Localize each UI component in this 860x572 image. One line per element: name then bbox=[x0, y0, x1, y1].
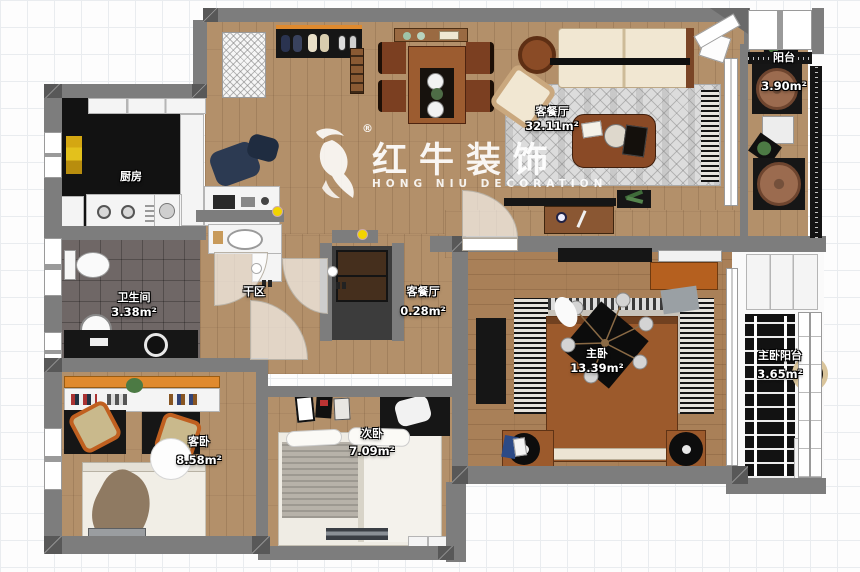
kitchen-yellow-jars bbox=[66, 136, 82, 174]
shoe-item bbox=[308, 34, 317, 52]
plant-leaf bbox=[754, 139, 773, 158]
stove-burner bbox=[97, 205, 111, 219]
room-name: 主卧阳台 bbox=[758, 350, 802, 362]
yellow-marker-dot bbox=[357, 229, 368, 240]
dining-chair bbox=[466, 42, 494, 74]
window-master-balcony-right bbox=[798, 312, 822, 478]
wall-corridor-a bbox=[196, 210, 284, 222]
room-label-passage: 客餐厅 0.28m² bbox=[400, 286, 445, 318]
room-label-master-balcony: 主卧阳台 3.65m² bbox=[757, 350, 802, 381]
room-name: 卫生间 bbox=[118, 292, 151, 304]
wall-guest-bottom bbox=[44, 536, 270, 554]
decor-tray bbox=[439, 31, 459, 40]
wall-corner bbox=[192, 84, 207, 98]
bath-vanity bbox=[64, 330, 198, 360]
nightstand-paper bbox=[513, 437, 527, 456]
room-label-second: 次卧 7.09m² bbox=[349, 428, 394, 458]
drying-rack-rail bbox=[754, 316, 757, 476]
picture-frame bbox=[315, 393, 333, 418]
drying-rack-floor bbox=[745, 314, 795, 478]
wall-balcony-left bbox=[740, 44, 748, 238]
master-ac-unit bbox=[658, 250, 722, 262]
toilet-tank bbox=[64, 250, 76, 280]
room-label-balcony: 阳台 3.90m² bbox=[761, 52, 806, 93]
entry-bench bbox=[350, 48, 364, 94]
room-name: 干区 bbox=[243, 286, 265, 298]
hongniu-bull-logo bbox=[306, 126, 366, 202]
dining-plate bbox=[427, 101, 444, 118]
wall-corner bbox=[452, 466, 468, 484]
master-bed-foot bbox=[550, 448, 674, 460]
desk-mouse bbox=[556, 212, 567, 223]
second-bed-footbar bbox=[326, 528, 388, 540]
wall-master-bottom bbox=[452, 466, 748, 484]
living-plant bbox=[617, 190, 651, 208]
window-balcony-top bbox=[748, 10, 812, 50]
window-master-balcony bbox=[726, 268, 738, 466]
entry-sideboard bbox=[394, 28, 468, 42]
dining-chair bbox=[378, 80, 406, 112]
second-bed-pillow bbox=[286, 429, 343, 448]
dry-area-vanity bbox=[208, 224, 282, 254]
room-name: 客卧 bbox=[188, 436, 210, 448]
room-name: 次卧 bbox=[361, 428, 383, 440]
wall-second-top bbox=[262, 386, 454, 397]
picture-frame bbox=[295, 395, 316, 423]
media-strip bbox=[504, 198, 616, 206]
wall-second-bottom bbox=[258, 546, 454, 560]
room-label-kitchen: 厨房 bbox=[120, 171, 142, 183]
wall-balcony-cap-right bbox=[812, 8, 824, 54]
drying-rack-rail bbox=[784, 316, 787, 476]
wall-corner bbox=[438, 546, 454, 560]
nightstand-lamp bbox=[682, 445, 691, 454]
dimension-strip-balcony-right bbox=[810, 66, 822, 238]
wall-corner bbox=[732, 466, 748, 484]
wall-master-left bbox=[452, 252, 468, 482]
rug-runner bbox=[701, 90, 719, 182]
window-living-balcony bbox=[724, 58, 738, 206]
wall-corner bbox=[44, 358, 62, 372]
wall-kitchen-bottom bbox=[56, 226, 206, 240]
shoe-item bbox=[338, 35, 346, 51]
room-name: 主卧 bbox=[586, 348, 608, 360]
room-label-dry-area: 干区 bbox=[243, 286, 265, 298]
wall-bath-bottom bbox=[56, 358, 268, 372]
floor-plan-screenshot: { "watermark": { "brand": "红牛装饰", "subti… bbox=[0, 0, 860, 572]
room-area: 13.39m² bbox=[570, 362, 623, 375]
master-gray-mat bbox=[661, 286, 700, 315]
room-area: 32.11m² bbox=[525, 120, 578, 133]
room-label-guest: 客卧 8.58m² bbox=[176, 436, 221, 467]
book-spines bbox=[169, 394, 199, 405]
master-wardrobe bbox=[476, 318, 506, 404]
coffee-table-book bbox=[581, 121, 603, 139]
dining-centerpiece-plant bbox=[431, 88, 443, 100]
master-balcony-top-cabinet bbox=[746, 254, 818, 310]
watermark-brand: 红牛装饰 bbox=[372, 132, 560, 183]
round-chair bbox=[518, 36, 556, 74]
shoe-rack bbox=[222, 32, 266, 98]
desk-plant bbox=[126, 378, 143, 393]
room-label-living: 客餐厅 32.11m² bbox=[525, 106, 578, 133]
wall-corridor-b bbox=[332, 230, 378, 243]
master-rug-band bbox=[514, 298, 548, 414]
room-name: 阳台 bbox=[773, 52, 795, 64]
second-bed-blanket bbox=[282, 442, 358, 518]
picture-frame bbox=[333, 398, 350, 421]
wall-corner bbox=[44, 536, 62, 554]
room-area: 3.90m² bbox=[761, 80, 806, 93]
kitchen-sink bbox=[154, 194, 180, 228]
room-area: 7.09m² bbox=[349, 445, 394, 458]
room-area: 3.38m² bbox=[111, 306, 156, 319]
wall-corner bbox=[44, 84, 62, 98]
wall-left-4 bbox=[44, 372, 62, 428]
apartment-plan: 客餐厅 32.11m² 阳台 3.90m² 厨房 卫生间 3.38m² 干区 客… bbox=[0, 0, 860, 572]
wall-left-1 bbox=[44, 96, 62, 136]
room-name: 客餐厅 bbox=[407, 286, 440, 298]
window-left-1 bbox=[44, 132, 62, 178]
picture-accent bbox=[320, 400, 328, 406]
watermark-subtitle: HONG NIU DECORATION bbox=[372, 178, 607, 190]
decor-celadon bbox=[417, 32, 425, 40]
room-area: 3.65m² bbox=[757, 368, 802, 381]
wall-corner bbox=[203, 8, 218, 22]
master-tv-console bbox=[558, 248, 652, 262]
yellow-marker-dot bbox=[272, 206, 283, 217]
soap-tray bbox=[213, 231, 223, 244]
wall-top bbox=[203, 8, 749, 22]
room-label-master: 主卧 13.39m² bbox=[570, 348, 623, 375]
wall-entry-left bbox=[193, 20, 207, 90]
small-appliance bbox=[241, 197, 255, 207]
master-rug-band bbox=[680, 298, 714, 414]
appliance-knob bbox=[261, 197, 269, 205]
shoe-item bbox=[320, 34, 329, 52]
rattan-pouf bbox=[757, 162, 801, 206]
room-name: 客餐厅 bbox=[536, 106, 569, 118]
sofa-back-table bbox=[550, 58, 690, 65]
window-left-2 bbox=[44, 238, 62, 296]
master-orange-cabinet bbox=[650, 262, 718, 290]
kitchen-upper-cabinets bbox=[88, 98, 206, 114]
basin bbox=[227, 229, 263, 250]
wall-left-3 bbox=[44, 296, 62, 332]
dining-chair bbox=[466, 80, 494, 112]
book-spines bbox=[107, 394, 127, 405]
dining-chair bbox=[378, 42, 406, 74]
room-area: 0.28m² bbox=[400, 305, 445, 318]
shoe-item bbox=[293, 35, 302, 52]
door-leaf bbox=[462, 238, 518, 251]
room-name: 厨房 bbox=[120, 171, 142, 183]
room-label-bathroom: 卫生间 3.38m² bbox=[111, 292, 156, 319]
plant-leaf bbox=[627, 196, 643, 204]
toilet-bowl bbox=[76, 252, 110, 278]
shoe-item bbox=[281, 35, 290, 52]
decor-celadon bbox=[403, 32, 411, 40]
wall-kitchen-top bbox=[44, 84, 207, 98]
white-marker-dot bbox=[251, 263, 262, 274]
vanity-items bbox=[90, 338, 108, 346]
wall-corner bbox=[252, 536, 270, 554]
coffee-machine bbox=[213, 195, 235, 209]
window-left-4 bbox=[44, 428, 62, 490]
stove-burner bbox=[121, 205, 135, 219]
switch-marker bbox=[336, 274, 348, 293]
sink-basin bbox=[159, 203, 175, 219]
washing-machine bbox=[144, 333, 168, 357]
coffee-table-tablet bbox=[622, 125, 648, 158]
room-area: 8.58m² bbox=[176, 454, 221, 467]
